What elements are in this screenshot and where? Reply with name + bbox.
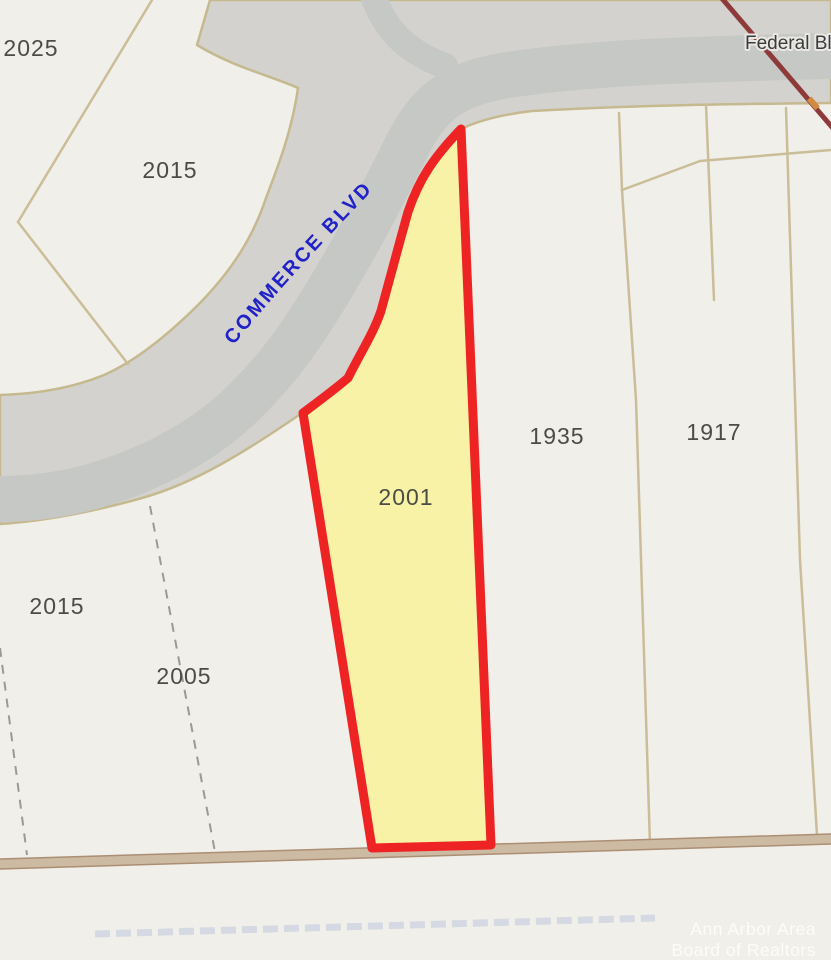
lot-label-1935: 1935 bbox=[529, 423, 584, 449]
lot-label-2001: 2001 bbox=[378, 484, 433, 510]
federal-blvd-label: Federal Blvd bbox=[745, 33, 831, 54]
watermark-line1: Ann Arbor Area bbox=[690, 919, 816, 939]
parcel-map-canvas[interactable]: COMMERCE BLVD Federal Blvd 2025 2015 200… bbox=[0, 0, 831, 960]
lot-label-2005: 2005 bbox=[156, 663, 211, 689]
lot-label-2025: 2025 bbox=[3, 35, 58, 61]
lot-label-2015-bottom: 2015 bbox=[29, 593, 84, 619]
watermark-line2: Board of Realtors bbox=[671, 940, 816, 960]
lot-label-2015-top: 2015 bbox=[142, 157, 197, 183]
parcel-map-stage: COMMERCE BLVD Federal Blvd 2025 2015 200… bbox=[0, 0, 831, 960]
lot-label-1917: 1917 bbox=[686, 419, 741, 445]
